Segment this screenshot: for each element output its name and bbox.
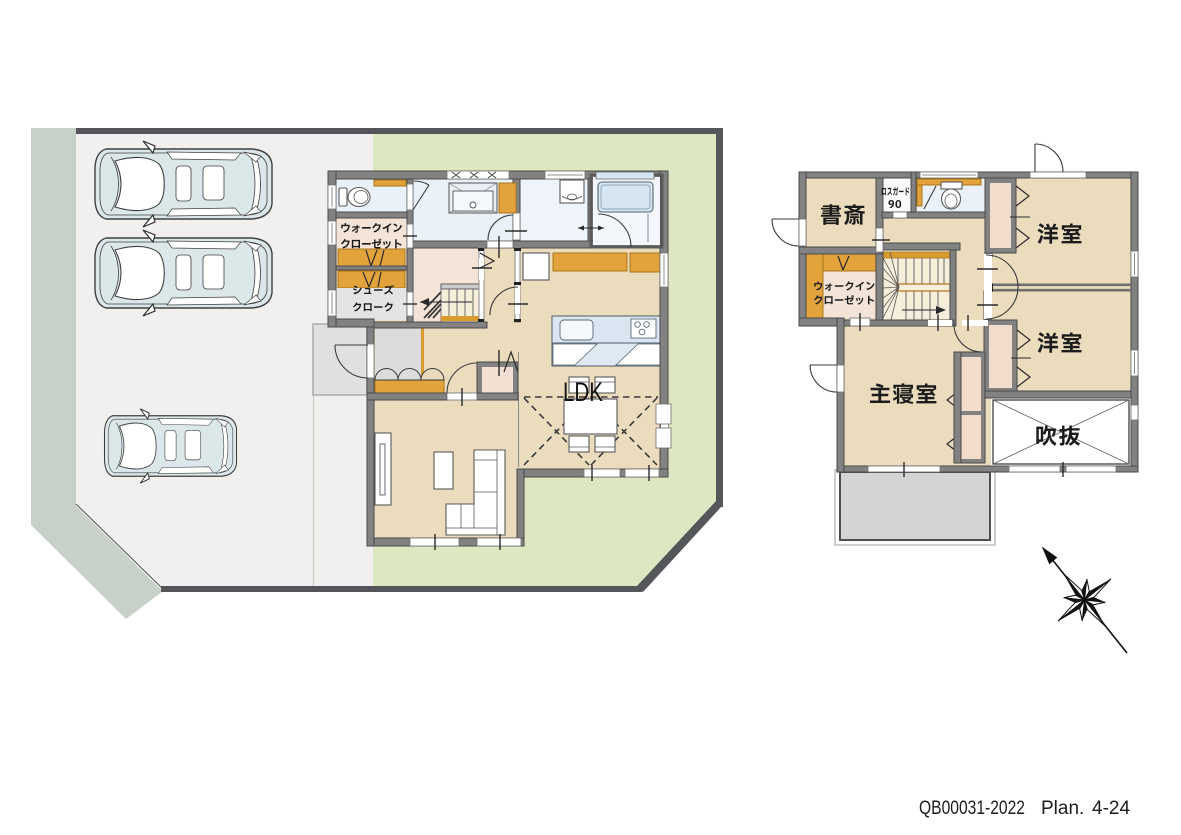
svg-text:4-24: 4-24 — [1092, 798, 1130, 819]
svg-text:QB00031-2022: QB00031-2022 — [919, 798, 1025, 819]
svg-text:LDK: LDK — [563, 377, 603, 407]
svg-text:Plan.: Plan. — [1041, 798, 1084, 819]
